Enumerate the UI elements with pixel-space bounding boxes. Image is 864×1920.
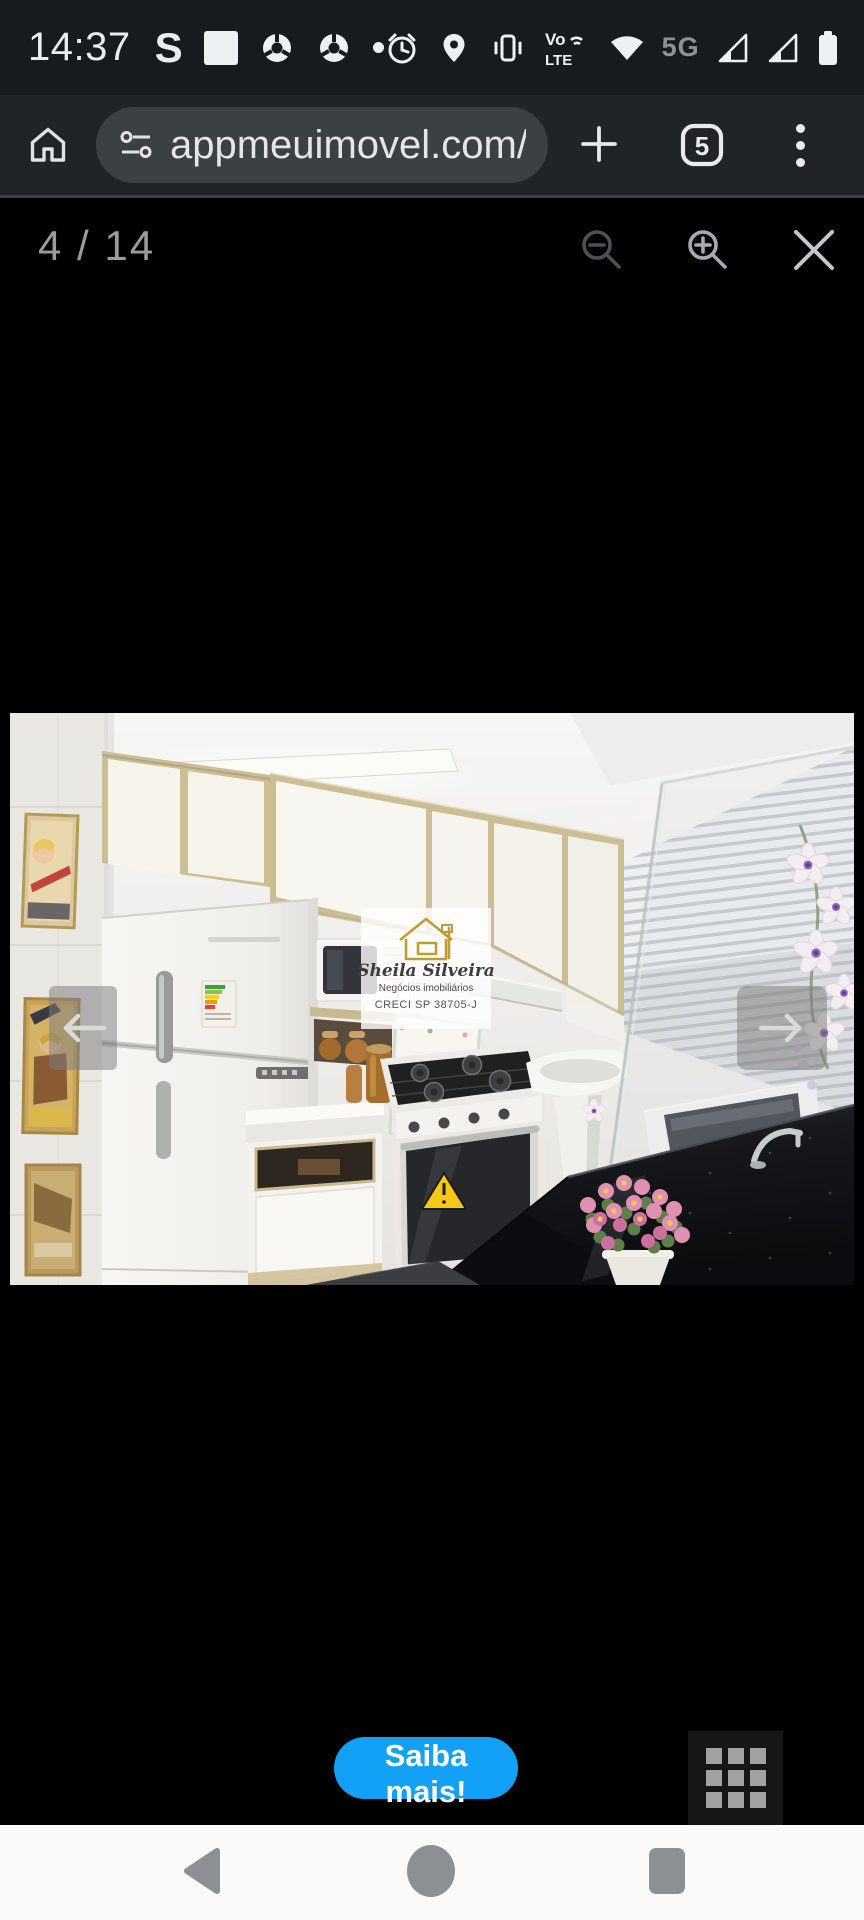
tab-count: 5 bbox=[678, 124, 726, 168]
back-button[interactable] bbox=[181, 1845, 225, 1900]
dot-icon bbox=[796, 124, 805, 133]
recents-square-icon bbox=[645, 1845, 689, 1897]
location-icon bbox=[436, 30, 472, 66]
svg-text:LTE: LTE bbox=[545, 52, 572, 69]
image-counter: 4 / 14 bbox=[38, 222, 155, 270]
alarm-icon bbox=[384, 30, 420, 66]
agency-watermark: Sheila Silveira Negócios imobiliários CR… bbox=[361, 908, 491, 1029]
vibrate-icon bbox=[488, 30, 528, 66]
browser-toolbar: appmeuimovel.com/lanc 5 bbox=[0, 95, 864, 198]
saiba-mais-button[interactable]: Saiba mais! bbox=[334, 1737, 518, 1799]
system-status-icons: Vo LTE 5G bbox=[384, 27, 840, 69]
watermark-subtitle: Negócios imobiliários bbox=[379, 983, 473, 994]
site-settings-icon bbox=[118, 127, 154, 163]
url-bar[interactable]: appmeuimovel.com/lanc bbox=[96, 107, 548, 183]
grid-icon bbox=[706, 1748, 766, 1808]
more-notifications-dot-icon bbox=[373, 42, 384, 53]
notification-icons: S bbox=[155, 27, 384, 69]
recent-apps-button[interactable] bbox=[645, 1845, 689, 1900]
zoom-out-button[interactable] bbox=[576, 224, 628, 276]
new-tab-button[interactable] bbox=[576, 121, 622, 170]
zoom-in-icon bbox=[682, 224, 734, 276]
tab-switcher-button[interactable]: 5 bbox=[678, 121, 726, 169]
back-triangle-icon bbox=[181, 1845, 225, 1897]
dot-icon bbox=[796, 158, 805, 167]
wifi-icon bbox=[608, 30, 646, 66]
signal-strength-icon bbox=[716, 31, 750, 65]
thumbnails-grid-button[interactable] bbox=[688, 1731, 783, 1825]
prev-image-button[interactable] bbox=[49, 986, 117, 1070]
home-icon bbox=[24, 121, 72, 169]
chrome-notification-icon bbox=[316, 30, 352, 66]
arrow-right-icon bbox=[757, 1011, 807, 1045]
android-nav-bar bbox=[0, 1825, 864, 1920]
close-icon bbox=[788, 224, 840, 276]
arrow-left-icon bbox=[58, 1011, 108, 1045]
url-text: appmeuimovel.com/lanc bbox=[170, 123, 526, 168]
home-button[interactable] bbox=[24, 121, 72, 169]
plus-icon bbox=[576, 121, 622, 167]
browser-menu-button[interactable] bbox=[796, 124, 805, 167]
zoom-in-button[interactable] bbox=[682, 224, 734, 276]
svg-text:Vo: Vo bbox=[545, 30, 565, 49]
house-logo-icon bbox=[393, 913, 459, 963]
dot-icon bbox=[796, 141, 805, 150]
screenshot-notification-icon bbox=[204, 31, 238, 65]
chrome-notification-icon bbox=[259, 30, 295, 66]
signal-strength-icon bbox=[766, 31, 800, 65]
watermark-license: CRECI SP 38705-J bbox=[375, 999, 478, 1011]
clock-text: 14:37 bbox=[28, 25, 131, 70]
zoom-out-icon bbox=[576, 224, 628, 276]
home-nav-button[interactable] bbox=[404, 1843, 458, 1902]
battery-icon bbox=[816, 29, 840, 67]
s-app-notification-icon: S bbox=[155, 27, 183, 69]
next-image-button[interactable] bbox=[737, 986, 827, 1070]
status-bar: 14:37 S bbox=[0, 0, 864, 95]
home-circle-icon bbox=[404, 1843, 458, 1899]
android-screen: 14:37 S bbox=[0, 0, 864, 1920]
watermark-name: Sheila Silveira bbox=[357, 963, 495, 981]
volte-icon: Vo LTE bbox=[544, 27, 592, 69]
network-type-5g: 5G bbox=[662, 32, 700, 63]
close-gallery-button[interactable] bbox=[788, 224, 840, 276]
